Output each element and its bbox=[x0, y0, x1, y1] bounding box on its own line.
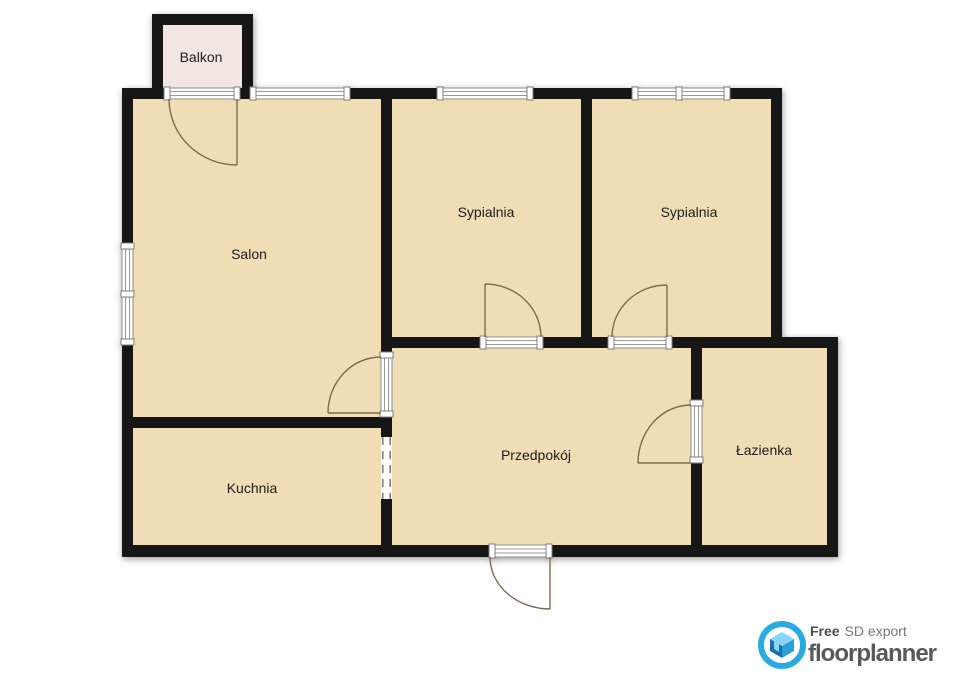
free-sd-export-label: FreeSD export bbox=[810, 623, 907, 639]
opening-kitchen bbox=[381, 437, 392, 499]
room-label-salon: Salon bbox=[231, 246, 267, 262]
doorway-bathroom bbox=[690, 400, 703, 463]
brand-name: floorplanner bbox=[808, 640, 937, 667]
wall-balcony-top bbox=[152, 14, 253, 25]
wall-bottom bbox=[122, 545, 838, 557]
floorplanner-logo-icon bbox=[761, 624, 803, 666]
window-bedroom-1 bbox=[437, 87, 533, 100]
room-label-kuchnia: Kuchnia bbox=[227, 480, 278, 496]
entrance-door bbox=[490, 557, 550, 609]
window-salon-top bbox=[250, 87, 350, 100]
doorway-entrance bbox=[489, 544, 552, 558]
doorway-balcony bbox=[164, 87, 240, 100]
doorway-salon-hall bbox=[380, 352, 393, 417]
floor-plan bbox=[121, 14, 838, 558]
floorplanner-logo: FreeSD export floorplanner bbox=[761, 623, 937, 667]
window-salon-left bbox=[121, 243, 134, 345]
floor-plan-canvas: Balkon Salon Sypialnia Sypialnia Kuchnia… bbox=[0, 0, 960, 679]
room-label-sypialnia-2: Sypialnia bbox=[661, 204, 718, 220]
wall-right-bathroom bbox=[827, 337, 838, 557]
window-bedroom-2 bbox=[632, 87, 730, 100]
wall-right-upper bbox=[771, 88, 782, 348]
wall-kitchen-top bbox=[122, 417, 392, 428]
sd-export-label: SD export bbox=[845, 623, 907, 639]
wall-bedroom-divider bbox=[581, 88, 592, 348]
free-label: Free bbox=[810, 623, 840, 639]
wall-balcony-left bbox=[152, 14, 163, 88]
doorway-bedroom-2 bbox=[608, 336, 672, 349]
room-label-przedpokoj: Przedpokój bbox=[501, 447, 571, 463]
doorway-bedroom-1 bbox=[480, 336, 543, 349]
wall-balcony-right bbox=[242, 14, 253, 88]
room-label-balkon: Balkon bbox=[180, 49, 223, 65]
room-label-sypialnia-1: Sypialnia bbox=[458, 204, 515, 220]
room-label-lazienka: Łazienka bbox=[736, 442, 792, 458]
